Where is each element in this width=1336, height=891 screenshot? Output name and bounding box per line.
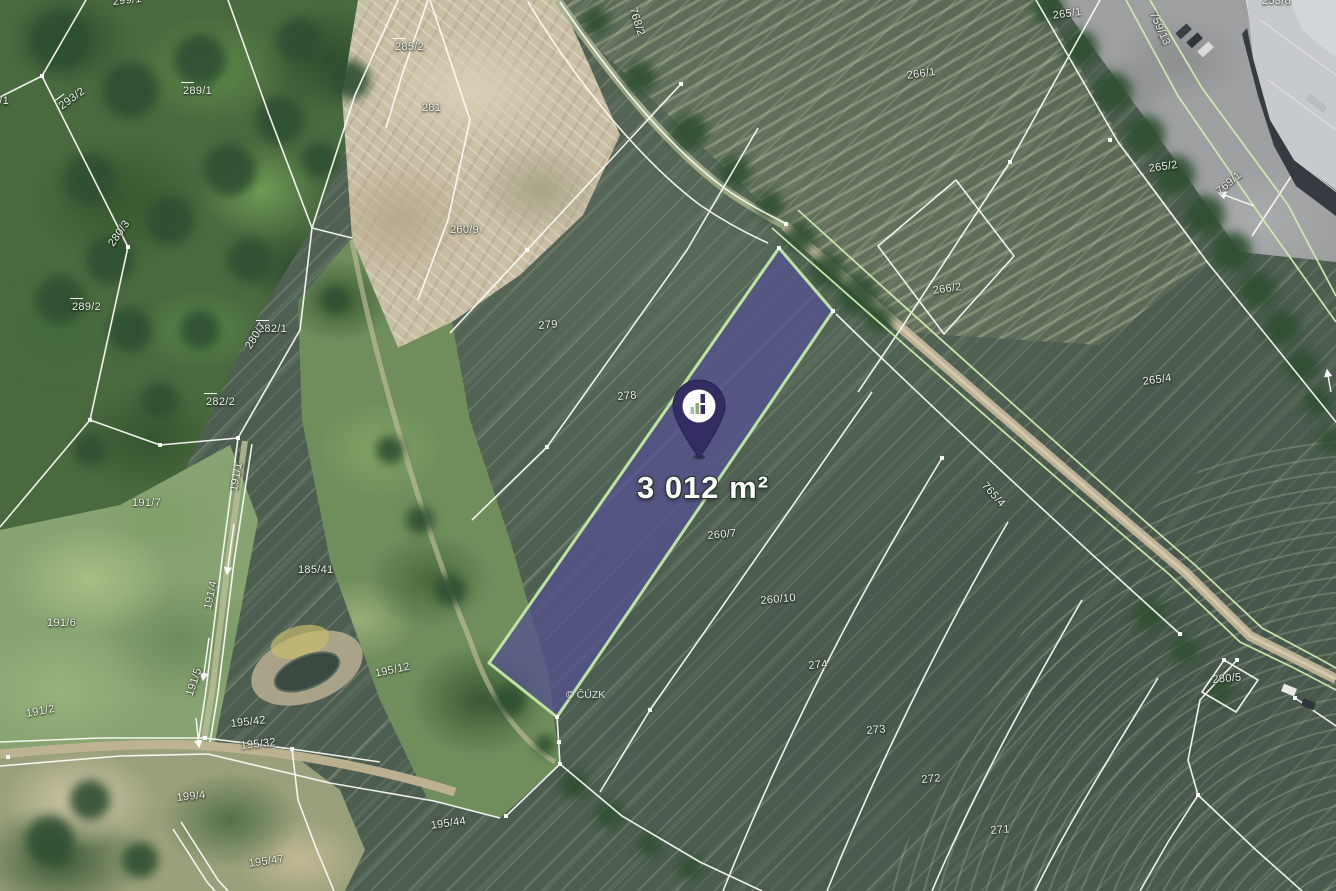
location-pin[interactable] bbox=[666, 376, 732, 460]
map-watermark: © ČÚZK bbox=[566, 689, 605, 701]
industrial-building bbox=[1242, 0, 1336, 216]
road-parcel-green-lines bbox=[772, 0, 1336, 690]
pond bbox=[241, 616, 373, 720]
area-label: 3 012 m² bbox=[637, 470, 769, 506]
map-canvas[interactable]: 299/1293/1293/2289/1285/2281260/9768/226… bbox=[0, 0, 1336, 891]
